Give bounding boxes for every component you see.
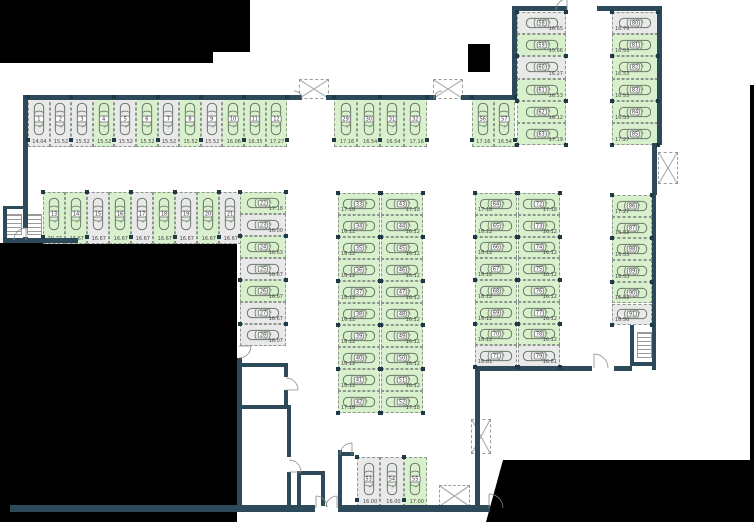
column-marker [513, 138, 517, 142]
staircase-icon [27, 214, 42, 235]
stall-area-label: 16.53 [615, 231, 629, 236]
parking-stall-49[interactable]: 4916.12 [381, 325, 423, 347]
parking-stall-73[interactable]: 7316.12 [518, 215, 560, 237]
wall-segment [657, 6, 662, 145]
wall-segment [630, 362, 656, 366]
stall-area-label: 16.67 [269, 273, 283, 278]
stall-area-label: 15.66 [549, 49, 563, 54]
stall-area-label: 16.12 [341, 230, 355, 235]
stall-number: 69 [491, 309, 501, 316]
parking-stall-71: 7116.81 [475, 345, 517, 367]
outside-area [468, 44, 490, 72]
stall-area-label: 16.79 [615, 27, 629, 32]
column-marker [217, 235, 221, 239]
parking-stall-10[interactable]: 1016.06 [222, 97, 244, 147]
stall-area-label: 16.35 [248, 140, 262, 145]
column-marker [610, 323, 614, 327]
stall-number: 56 [478, 116, 488, 123]
stall-number: 13 [49, 211, 59, 218]
parking-stall-40[interactable]: 4016.12 [338, 347, 380, 369]
parking-stall-72[interactable]: 7217.18 [518, 193, 560, 215]
stall-number: 22 [258, 200, 268, 207]
parking-stall-19: 1916.67 [175, 192, 197, 244]
parking-stall-56[interactable]: 5617.16 [472, 97, 494, 147]
stall-area-label: 15.52 [97, 140, 111, 145]
stall-number: 11 [250, 116, 260, 123]
stall-area-label: 17.18 [406, 208, 420, 213]
column-marker [610, 236, 614, 240]
stall-area-label: 16.81 [543, 360, 557, 365]
parking-stall-45[interactable]: 4516.12 [381, 237, 423, 259]
stall-area-label: 16.12 [406, 340, 420, 345]
column-marker [379, 279, 383, 283]
wall-segment [338, 450, 342, 506]
column-marker [656, 99, 660, 103]
stall-number: 12 [271, 116, 281, 123]
stall-number: 81 [630, 42, 640, 49]
stall-area-label: 15.52 [75, 140, 89, 145]
parking-stall-87[interactable]: 8716.53 [612, 217, 652, 239]
stall-area-label: 17.27 [270, 140, 284, 145]
wall-segment [597, 6, 662, 11]
stall-number: 18 [159, 211, 169, 218]
stall-area-label: 16.12 [406, 274, 420, 279]
column-marker [421, 367, 425, 371]
column-marker [421, 279, 425, 283]
wall-segment [321, 471, 325, 506]
column-marker [238, 190, 242, 194]
column-marker [332, 95, 336, 99]
stall-number: 40 [354, 355, 364, 362]
stall-area-label: 16.12 [478, 295, 492, 300]
parking-stall-91: 9116.56 [612, 304, 652, 326]
parking-stall-35[interactable]: 3516.12 [338, 237, 380, 259]
column-marker [332, 138, 336, 142]
column-marker [284, 278, 288, 282]
stall-area-label: 17.16 [476, 140, 490, 145]
stall-area-label: 16.67 [158, 237, 172, 242]
parking-stall-63[interactable]: 6317.19 [517, 123, 566, 145]
stall-number: 42 [354, 399, 364, 406]
stall-area-label: 16.53 [615, 116, 629, 121]
stall-number: 17 [137, 211, 147, 218]
parking-stall-34[interactable]: 3416.12 [338, 215, 380, 237]
parking-stall-38[interactable]: 3816.12 [338, 303, 380, 325]
stall-area-label: 16.12 [406, 384, 420, 389]
stall-area-label: 16.12 [341, 318, 355, 323]
column-marker [217, 190, 221, 194]
stall-area-label: 16.12 [543, 338, 557, 343]
wall-segment [630, 325, 634, 366]
parking-stall-6[interactable]: 615.52 [136, 97, 158, 147]
stall-number: 25 [258, 266, 268, 273]
column-marker [336, 411, 340, 415]
stall-area-label: 16.53 [615, 94, 629, 99]
stall-number: 54 [387, 476, 397, 483]
stall-number: 82 [630, 64, 640, 71]
parking-stall-12[interactable]: 1217.27 [266, 97, 288, 147]
parking-stall-24[interactable]: 2416.63 [240, 236, 286, 258]
stall-number: 80 [630, 20, 640, 27]
stall-area-label: 17.27 [615, 138, 629, 143]
column-marker [85, 235, 89, 239]
column-marker [285, 95, 289, 99]
column-marker [473, 191, 477, 195]
column-marker [336, 235, 340, 239]
stall-number: 2 [55, 116, 65, 123]
stall-number: 24 [258, 244, 268, 251]
parking-stall-39[interactable]: 3916.12 [338, 325, 380, 347]
wall-segment [242, 363, 288, 367]
parking-stall-28: 2816.07 [240, 324, 286, 346]
column-marker [242, 95, 246, 99]
stall-number: 84 [630, 108, 640, 115]
column-marker [379, 191, 383, 195]
stall-area-label: 16.27 [549, 72, 563, 77]
parking-stall-8[interactable]: 815.52 [179, 97, 201, 147]
parking-stall-55[interactable]: 5517.00 [404, 457, 427, 507]
column-marker [470, 95, 474, 99]
stall-number: 38 [354, 311, 364, 318]
stall-number: 57 [499, 116, 509, 123]
column-marker [156, 138, 160, 142]
stall-area-label: 16.67 [114, 237, 128, 242]
stall-area-label: 16.12 [406, 252, 420, 257]
stall-area-label: 16.56 [615, 318, 629, 323]
stall-number: 70 [491, 331, 501, 338]
stall-area-label: 16.12 [406, 362, 420, 367]
parking-stall-69[interactable]: 6916.12 [475, 302, 517, 324]
column-marker [355, 455, 359, 459]
stall-number: 28 [258, 332, 268, 339]
column-marker [421, 411, 425, 415]
parking-stall-60: 6016.27 [517, 56, 566, 78]
column-marker [558, 235, 562, 239]
column-marker [69, 138, 73, 142]
column-marker [402, 498, 406, 502]
stall-area-label: 16.53 [615, 275, 629, 280]
stall-number: 10 [228, 116, 238, 123]
wall-segment [475, 366, 592, 371]
stall-number: 53 [363, 476, 373, 483]
parking-stall-85[interactable]: 8517.27 [612, 123, 658, 145]
parking-stall-48[interactable]: 4816.12 [381, 303, 423, 325]
parking-stall-15: 1516.67 [87, 192, 109, 244]
wall-segment [10, 505, 315, 512]
parking-stall-51[interactable]: 5116.12 [381, 369, 423, 391]
stall-area-label: 16.12 [543, 273, 557, 278]
stall-number: 41 [354, 377, 364, 384]
stall-area-label: 16.12 [549, 116, 563, 121]
stall-area-label: 16.12 [478, 230, 492, 235]
stall-area-label: 16.12 [406, 296, 420, 301]
parking-stall-26[interactable]: 2616.67 [240, 280, 286, 302]
wall-segment [475, 368, 480, 508]
stall-area-label: 17.18 [341, 406, 355, 411]
wall-segment [287, 405, 291, 457]
column-marker [473, 365, 477, 369]
stall-number: 59 [536, 42, 546, 49]
parking-stall-43[interactable]: 4317.18 [381, 193, 423, 215]
parking-stall-57[interactable]: 5716.54 [494, 97, 516, 147]
stall-area-label: 15.52 [140, 140, 154, 145]
column-marker [516, 365, 520, 369]
parking-stall-41[interactable]: 4116.12 [338, 369, 380, 391]
parking-stall-32[interactable]: 3217.16 [404, 97, 427, 147]
stall-area-label: 17.27 [615, 210, 629, 215]
column-marker [336, 279, 340, 283]
column-marker [238, 322, 242, 326]
parking-stall-79: 7916.81 [518, 345, 560, 367]
stall-area-label: 16.07 [269, 339, 283, 344]
parking-stall-36[interactable]: 3616.12 [338, 259, 380, 281]
shaft-x-icon [658, 152, 678, 184]
stall-area-label: 16.12 [341, 274, 355, 279]
stall-area-label: 16.63 [269, 251, 283, 256]
column-marker [656, 54, 660, 58]
stall-area-label: 16.12 [543, 230, 557, 235]
stall-area-label: 15.52 [162, 140, 176, 145]
parking-stall-37[interactable]: 3716.12 [338, 281, 380, 303]
parking-stall-66[interactable]: 6616.12 [475, 237, 517, 259]
parking-stall-88[interactable]: 8816.53 [612, 238, 652, 260]
column-marker [284, 234, 288, 238]
parking-stall-61[interactable]: 6116.53 [517, 79, 566, 101]
stall-area-label: 16.53 [615, 49, 629, 54]
wall-segment [614, 366, 632, 371]
column-marker [516, 322, 520, 326]
stall-number: 33 [354, 201, 364, 208]
parking-stall-14[interactable]: 1416.67 [65, 192, 87, 244]
parking-stall-50[interactable]: 5016.12 [381, 347, 423, 369]
stall-number: 4 [99, 116, 109, 123]
parking-stall-46[interactable]: 4616.12 [381, 259, 423, 281]
column-marker [284, 190, 288, 194]
parking-stall-90[interactable]: 9016.53 [612, 282, 652, 304]
parking-stall-81[interactable]: 8116.53 [612, 34, 658, 56]
column-marker [473, 322, 477, 326]
parking-stall-27: 2716.67 [240, 302, 286, 324]
stall-area-label: 16.12 [543, 295, 557, 300]
stall-area-label: 16.53 [549, 94, 563, 99]
door-swing-icon [326, 496, 337, 508]
parking-stall-17: 1716.67 [131, 192, 153, 244]
parking-stall-64[interactable]: 6417.18 [475, 193, 517, 215]
stall-area-label: 16.54 [498, 140, 512, 145]
stall-number: 27 [258, 310, 268, 317]
column-marker [656, 10, 660, 14]
column-marker [425, 95, 429, 99]
column-marker [284, 322, 288, 326]
column-marker [473, 278, 477, 282]
parking-stall-67[interactable]: 6716.12 [475, 258, 517, 280]
stall-area-label: 16.67 [224, 237, 238, 242]
column-marker [402, 455, 406, 459]
parking-stall-70[interactable]: 7016.12 [475, 324, 517, 346]
staircase-icon [6, 214, 22, 235]
column-marker [199, 95, 203, 99]
column-marker [238, 234, 242, 238]
column-marker [379, 411, 383, 415]
column-marker [285, 138, 289, 142]
column-marker [470, 138, 474, 142]
column-marker [242, 138, 246, 142]
parking-stall-29[interactable]: 2917.16 [334, 97, 357, 147]
stall-number: 83 [630, 86, 640, 93]
stall-area-label: 16.67 [202, 237, 216, 242]
stall-number: 62 [536, 108, 546, 115]
column-marker [379, 235, 383, 239]
stall-area-label: 16.54 [363, 140, 377, 145]
parking-stall-7: 715.52 [158, 97, 180, 147]
shaft-x-icon [433, 79, 463, 99]
parking-stall-84[interactable]: 8416.53 [612, 101, 658, 123]
column-marker [650, 280, 654, 284]
column-marker [558, 365, 562, 369]
stall-area-label: 16.12 [341, 362, 355, 367]
stall-area-label: 16.67 [269, 295, 283, 300]
stall-number: 21 [225, 211, 235, 218]
column-marker [558, 191, 562, 195]
column-marker [238, 278, 242, 282]
stall-area-label: 16.12 [341, 296, 355, 301]
column-marker [355, 498, 359, 502]
parking-stall-4[interactable]: 415.52 [93, 97, 115, 147]
parking-stall-42[interactable]: 4217.18 [338, 391, 380, 413]
column-marker [610, 99, 614, 103]
parking-stall-77[interactable]: 7716.12 [518, 302, 560, 324]
parking-stall-13[interactable]: 1320.27 [43, 192, 65, 244]
column-marker [515, 143, 519, 147]
stall-number: 37 [354, 289, 364, 296]
column-marker [421, 191, 425, 195]
column-marker [85, 190, 89, 194]
column-marker [379, 367, 383, 371]
parking-stall-16[interactable]: 1616.67 [109, 192, 131, 244]
column-marker [156, 95, 160, 99]
stall-area-label: 16.12 [406, 230, 420, 235]
column-marker [656, 143, 660, 147]
parking-stall-86[interactable]: 8617.27 [612, 195, 652, 217]
parking-stall-44[interactable]: 4416.12 [381, 215, 423, 237]
stall-area-label: 16.12 [478, 338, 492, 343]
parking-stall-47[interactable]: 4716.12 [381, 281, 423, 303]
parking-stall-18[interactable]: 1816.67 [153, 192, 175, 244]
stall-number: 39 [354, 333, 364, 340]
stall-area-label: 16.12 [478, 251, 492, 256]
parking-stall-82[interactable]: 8216.53 [612, 56, 658, 78]
stall-area-label: 16.12 [478, 317, 492, 322]
parking-stall-62[interactable]: 6216.12 [517, 101, 566, 123]
stall-number: 7 [163, 116, 173, 123]
parking-stall-3: 315.52 [71, 97, 93, 147]
column-marker [610, 54, 614, 58]
parking-stall-83[interactable]: 8316.53 [612, 79, 658, 101]
column-marker [336, 323, 340, 327]
wall-segment [512, 6, 567, 11]
column-marker [199, 138, 203, 142]
parking-stall-78[interactable]: 7816.12 [518, 324, 560, 346]
stall-area-label: 17.16 [340, 140, 354, 145]
parking-stall-33[interactable]: 3317.18 [338, 193, 380, 215]
stall-area-label: 16.12 [478, 273, 492, 278]
parking-stall-30[interactable]: 3016.54 [357, 97, 380, 147]
parking-stall-11[interactable]: 1116.35 [244, 97, 266, 147]
wall-segment [284, 363, 288, 377]
stall-area-label: 14.04 [32, 140, 46, 145]
column-marker [112, 138, 116, 142]
stall-area-label: 17.19 [549, 138, 563, 143]
parking-stall-74[interactable]: 7416.12 [518, 237, 560, 259]
column-marker [516, 235, 520, 239]
stall-area-label: 16.12 [341, 340, 355, 345]
column-marker [650, 236, 654, 240]
stall-number: 35 [354, 245, 364, 252]
stall-area-label: 16.12 [406, 318, 420, 323]
column-marker [26, 95, 30, 99]
shaft-x-icon [439, 485, 470, 507]
column-marker [558, 322, 562, 326]
stall-number: 14 [71, 211, 81, 218]
parking-stall-89[interactable]: 8916.53 [612, 260, 652, 282]
staircase-icon [637, 332, 652, 358]
stall-number: 29 [340, 116, 350, 123]
stall-area-label: 16.67 [92, 237, 106, 242]
parking-stall-68[interactable]: 6816.12 [475, 280, 517, 302]
stall-area-label: 17.18 [543, 208, 557, 213]
stall-number: 9 [207, 116, 217, 123]
stall-area-label: 17.18 [406, 406, 420, 411]
column-marker [564, 10, 568, 14]
parking-stall-76[interactable]: 7616.12 [518, 280, 560, 302]
column-marker [564, 99, 568, 103]
stall-area-label: 17.18 [269, 207, 283, 212]
parking-stall-22[interactable]: 2217.18 [240, 192, 286, 214]
wall-segment [287, 472, 291, 506]
stall-number: 65 [491, 222, 501, 229]
stall-area-label: 16.00 [269, 229, 283, 234]
stall-area-label: 16.81 [478, 360, 492, 365]
parking-stall-59[interactable]: 5915.66 [517, 34, 566, 56]
column-marker [516, 278, 520, 282]
parking-stall-31[interactable]: 3116.54 [380, 97, 403, 147]
column-marker [610, 143, 614, 147]
stall-number: 55 [410, 476, 420, 483]
stall-number: 66 [491, 244, 501, 251]
column-marker [69, 95, 73, 99]
stall-number: 3 [77, 116, 87, 123]
parking-stall-80: 8016.79 [612, 12, 658, 34]
parking-stall-20[interactable]: 2016.67 [197, 192, 219, 244]
column-marker [379, 323, 383, 327]
column-marker [425, 138, 429, 142]
stall-number: 61 [536, 86, 546, 93]
stall-number: 32 [410, 116, 420, 123]
stall-area-label: 15.52 [54, 140, 68, 145]
stall-area-label: 17.16 [409, 140, 423, 145]
column-marker [558, 278, 562, 282]
wall-segment [338, 505, 490, 512]
stall-area-label: 16.53 [615, 296, 629, 301]
parking-stall-53: 5316.00 [357, 457, 380, 507]
stall-number: 16 [115, 211, 125, 218]
parking-stall-65[interactable]: 6516.12 [475, 215, 517, 237]
parking-stall-52[interactable]: 5217.18 [381, 391, 423, 413]
stall-number: 71 [491, 353, 501, 360]
column-marker [112, 95, 116, 99]
stall-number: 85 [630, 131, 640, 138]
parking-stall-75[interactable]: 7516.12 [518, 258, 560, 280]
